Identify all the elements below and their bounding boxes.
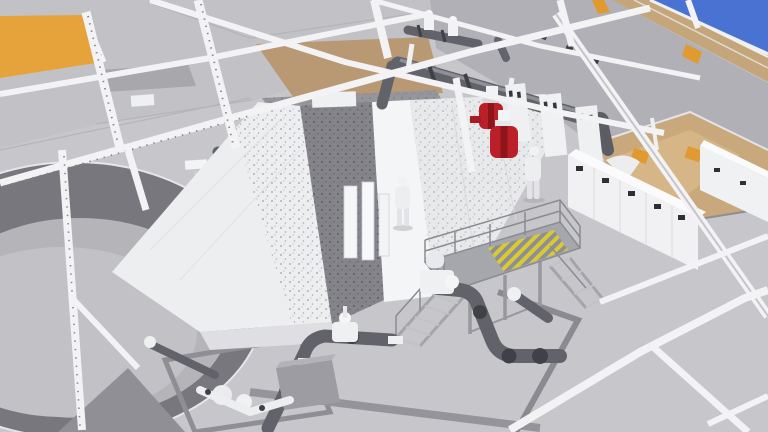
screen-discharge-chutes — [344, 182, 389, 260]
model-viewport[interactable] — [0, 0, 768, 432]
